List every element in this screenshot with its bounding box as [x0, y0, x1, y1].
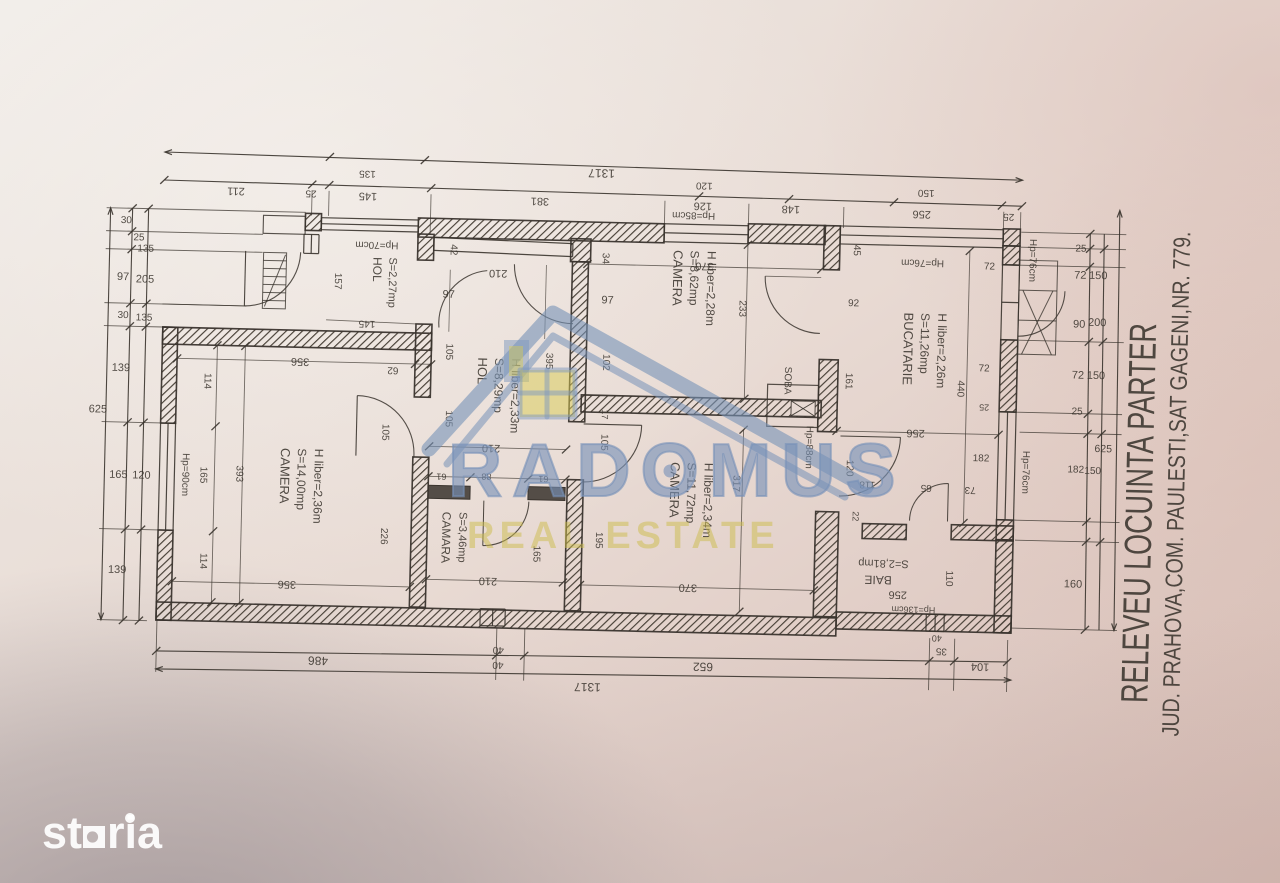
svg-text:40: 40 — [492, 659, 504, 670]
svg-text:161: 161 — [843, 373, 854, 390]
svg-text:35: 35 — [935, 645, 947, 656]
svg-text:135: 135 — [359, 168, 376, 179]
svg-text:Hp=70cm: Hp=70cm — [355, 239, 398, 251]
svg-text:370: 370 — [679, 581, 698, 593]
svg-text:42: 42 — [448, 244, 459, 256]
svg-text:72: 72 — [1072, 369, 1085, 381]
svg-text:104: 104 — [971, 660, 990, 672]
svg-text:34: 34 — [599, 253, 610, 265]
svg-text:61: 61 — [436, 471, 446, 481]
svg-text:H liber=2,26m: H liber=2,26m — [934, 313, 950, 388]
svg-text:S=8,62mp: S=8,62mp — [687, 250, 702, 306]
svg-text:625: 625 — [89, 403, 108, 415]
svg-text:CAMERA: CAMERA — [669, 250, 685, 306]
svg-text:40: 40 — [932, 633, 942, 643]
svg-text:73: 73 — [964, 484, 976, 495]
svg-text:25: 25 — [1003, 211, 1015, 222]
svg-text:25: 25 — [979, 402, 989, 412]
svg-text:H liber=2,36m: H liber=2,36m — [310, 449, 326, 524]
svg-text:S=2,81mp: S=2,81mp — [858, 556, 909, 569]
svg-text:65: 65 — [920, 482, 932, 493]
svg-text:210: 210 — [479, 575, 498, 587]
svg-text:22: 22 — [850, 511, 860, 521]
svg-text:72: 72 — [984, 261, 996, 272]
svg-text:114: 114 — [197, 553, 208, 570]
svg-text:165: 165 — [197, 467, 208, 484]
svg-text:440: 440 — [954, 380, 965, 397]
svg-text:226: 226 — [378, 528, 389, 545]
svg-text:Hp=76cm: Hp=76cm — [901, 256, 944, 268]
svg-text:25: 25 — [305, 187, 317, 198]
svg-text:652: 652 — [693, 660, 714, 674]
svg-text:HOL: HOL — [370, 257, 385, 282]
svg-text:RELEVEU LOCUINTA PARTER: RELEVEU LOCUINTA PARTER — [1114, 323, 1165, 704]
svg-text:160: 160 — [1064, 578, 1083, 590]
svg-text:Hp=90cm: Hp=90cm — [179, 453, 191, 496]
svg-text:BUCATARIE: BUCATARIE — [900, 312, 917, 385]
svg-text:381: 381 — [531, 195, 550, 207]
svg-text:1317: 1317 — [588, 166, 615, 181]
svg-text:BAIE: BAIE — [864, 573, 892, 588]
svg-text:25: 25 — [133, 232, 145, 243]
svg-text:Hp=85cm: Hp=85cm — [672, 209, 715, 221]
svg-text:92: 92 — [848, 298, 860, 309]
svg-text:211: 211 — [227, 184, 245, 196]
svg-text:120: 120 — [132, 469, 151, 481]
svg-text:395: 395 — [543, 353, 554, 370]
svg-text:S=14,00mp: S=14,00mp — [294, 448, 309, 510]
svg-text:RADOMUS: RADOMUS — [448, 428, 906, 512]
svg-text:Hp=76cm: Hp=76cm — [1026, 239, 1038, 282]
svg-text:145: 145 — [358, 318, 375, 329]
svg-text:CAMARA: CAMARA — [438, 512, 453, 564]
svg-text:148: 148 — [781, 203, 800, 215]
svg-text:st: st — [42, 807, 82, 858]
svg-text:356: 356 — [278, 578, 297, 590]
svg-text:72: 72 — [978, 363, 990, 374]
svg-text:S=11,26mp: S=11,26mp — [917, 313, 932, 374]
svg-text:157: 157 — [332, 273, 343, 290]
svg-text:40: 40 — [492, 644, 504, 655]
svg-text:145: 145 — [359, 190, 378, 202]
svg-text:105: 105 — [379, 424, 390, 441]
svg-text:105: 105 — [443, 343, 454, 360]
svg-text:30: 30 — [121, 215, 133, 226]
svg-text:182: 182 — [973, 453, 990, 464]
svg-text:150: 150 — [1087, 370, 1106, 382]
svg-text:72: 72 — [1074, 269, 1087, 281]
svg-text:205: 205 — [136, 273, 155, 285]
svg-text:SOBA: SOBA — [781, 367, 793, 395]
svg-text:150: 150 — [917, 187, 934, 198]
svg-text:114: 114 — [201, 373, 212, 390]
svg-text:370: 370 — [695, 260, 714, 272]
svg-text:139: 139 — [108, 564, 127, 576]
svg-text:45: 45 — [851, 245, 862, 257]
svg-text:110: 110 — [943, 570, 954, 587]
svg-text:97: 97 — [601, 294, 614, 306]
svg-text:62: 62 — [387, 364, 399, 375]
svg-text:256: 256 — [888, 588, 907, 600]
svg-text:ria: ria — [107, 807, 163, 858]
svg-text:200: 200 — [1088, 317, 1107, 329]
svg-text:210: 210 — [489, 267, 508, 279]
svg-text:256: 256 — [906, 427, 925, 439]
svg-text:150: 150 — [1084, 466, 1101, 477]
svg-text:393: 393 — [233, 465, 244, 482]
svg-text:256: 256 — [912, 208, 931, 220]
svg-text:S=2,27mp: S=2,27mp — [385, 257, 398, 308]
svg-text:90: 90 — [1073, 318, 1086, 330]
svg-text:30: 30 — [117, 310, 129, 321]
svg-text:97: 97 — [117, 271, 130, 283]
svg-text:CAMERA: CAMERA — [277, 448, 293, 504]
svg-text:Hp=136cm: Hp=136cm — [891, 604, 935, 615]
svg-text:REAL ESTATE: REAL ESTATE — [467, 515, 780, 557]
svg-text:1317: 1317 — [574, 680, 601, 695]
svg-text:625: 625 — [1094, 443, 1112, 455]
svg-text:182: 182 — [1067, 464, 1084, 475]
svg-text:139: 139 — [112, 362, 131, 374]
svg-text:97: 97 — [442, 289, 455, 301]
svg-text:150: 150 — [1089, 270, 1108, 282]
svg-text:120: 120 — [695, 180, 712, 191]
svg-text:17: 17 — [600, 409, 610, 419]
svg-text:356: 356 — [291, 355, 310, 367]
svg-text:Hp=76cm: Hp=76cm — [1019, 451, 1031, 494]
svg-text:135: 135 — [136, 312, 153, 323]
svg-text:486: 486 — [308, 654, 329, 668]
svg-text:25: 25 — [1071, 406, 1083, 417]
svg-text:165: 165 — [109, 469, 128, 481]
